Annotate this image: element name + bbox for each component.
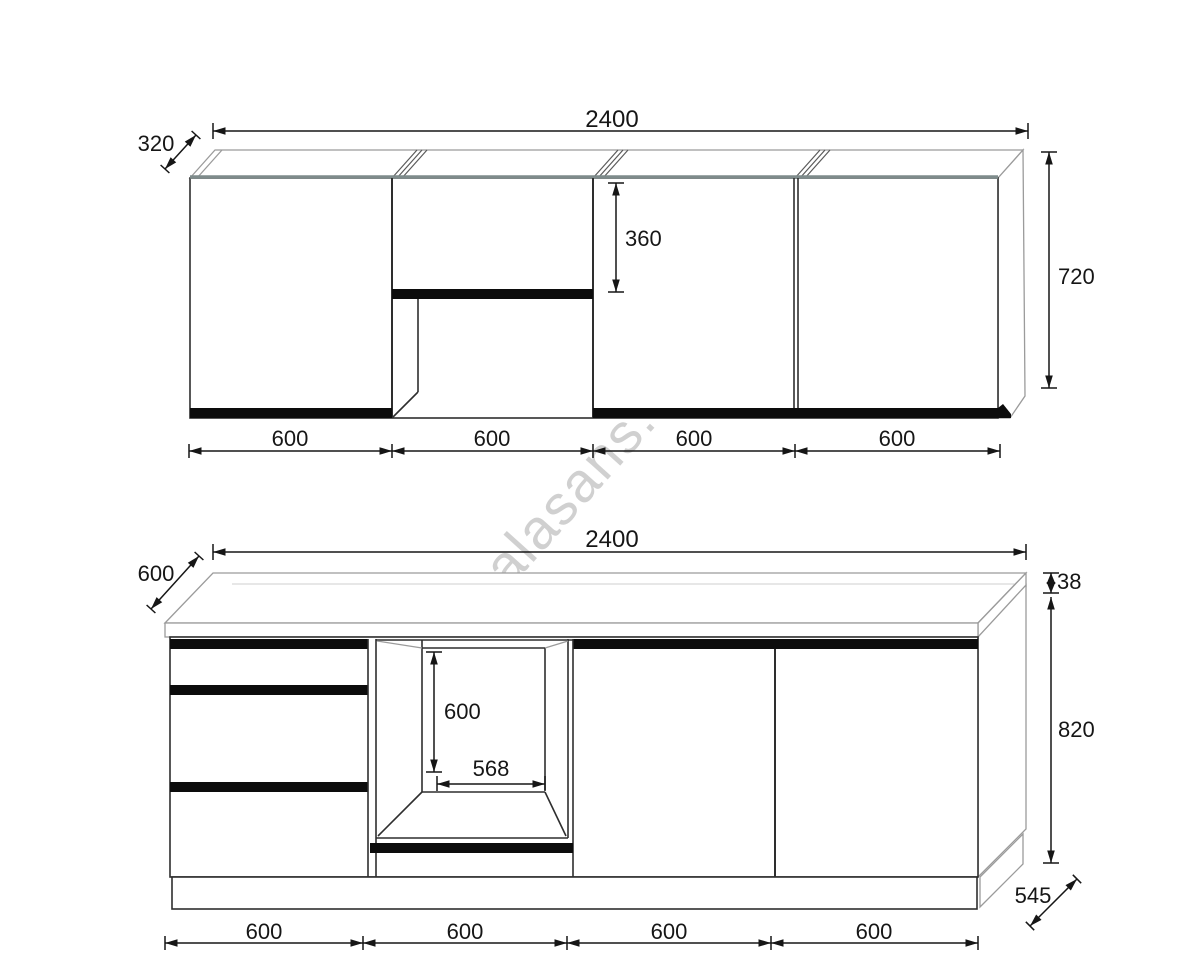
dim-label: 820 — [1058, 717, 1095, 742]
dim-label: 568 — [473, 756, 510, 781]
dim-label: 38 — [1057, 569, 1081, 594]
kitchen-technical-drawing-page: alasans.at 240 — [0, 0, 1200, 960]
plinth-front — [172, 877, 977, 909]
worktop-front-edge — [165, 623, 978, 637]
worktop-top-surface — [165, 573, 1026, 623]
dim-label: 600 — [444, 699, 481, 724]
wall-cabinet-bottom-band — [593, 408, 998, 418]
kitchen-cabinet-dimension-drawing: alasans.at 240 — [0, 0, 1200, 960]
dim-label: 600 — [272, 426, 309, 451]
wall-cabinet-bottom-band — [190, 408, 392, 418]
wall-cabinet-side-panel — [998, 150, 1025, 418]
dim-base-height: 820 — [1043, 597, 1095, 863]
dim-label: 600 — [856, 919, 893, 944]
dim-side-depth: 545 — [1015, 875, 1082, 930]
dim-label: 600 — [138, 561, 175, 586]
dim-label: 600 — [447, 919, 484, 944]
worktop-shadow-gap — [170, 639, 368, 649]
dim-label: 600 — [651, 919, 688, 944]
dim-lower-sections: 600 600 600 600 — [165, 919, 978, 950]
dim-label: 600 — [474, 426, 511, 451]
oven-bottom-gap — [370, 843, 573, 853]
dim-worktop-thickness: 38 — [1043, 569, 1081, 594]
drawer-gap — [170, 685, 368, 695]
dim-label: 2400 — [585, 106, 638, 133]
worktop-shadow-gap — [573, 639, 978, 649]
dim-lower-total-width: 2400 — [213, 526, 1026, 560]
dim-label: 720 — [1058, 264, 1095, 289]
hood-cabinet-bottom-band — [392, 289, 593, 299]
dim-label: 360 — [625, 226, 662, 251]
base-cabinet-side-panel — [978, 585, 1026, 877]
dim-upper-depth: 320 — [138, 131, 201, 173]
dim-label: 2400 — [585, 526, 638, 553]
dim-upper-total-width: 2400 — [213, 106, 1028, 139]
dim-label: 600 — [676, 426, 713, 451]
dim-label: 600 — [879, 426, 916, 451]
drawer-gap — [170, 782, 368, 792]
base-cabinets-view: 2400 600 38 820 545 — [138, 526, 1095, 950]
dim-label: 320 — [138, 131, 175, 156]
dim-label: 600 — [246, 919, 283, 944]
dim-upper-height: 720 — [1041, 152, 1095, 388]
upper-cabinets-view: 2400 320 720 360 — [138, 106, 1095, 458]
dim-label: 545 — [1015, 883, 1052, 908]
base-cabinet-front — [170, 637, 978, 877]
